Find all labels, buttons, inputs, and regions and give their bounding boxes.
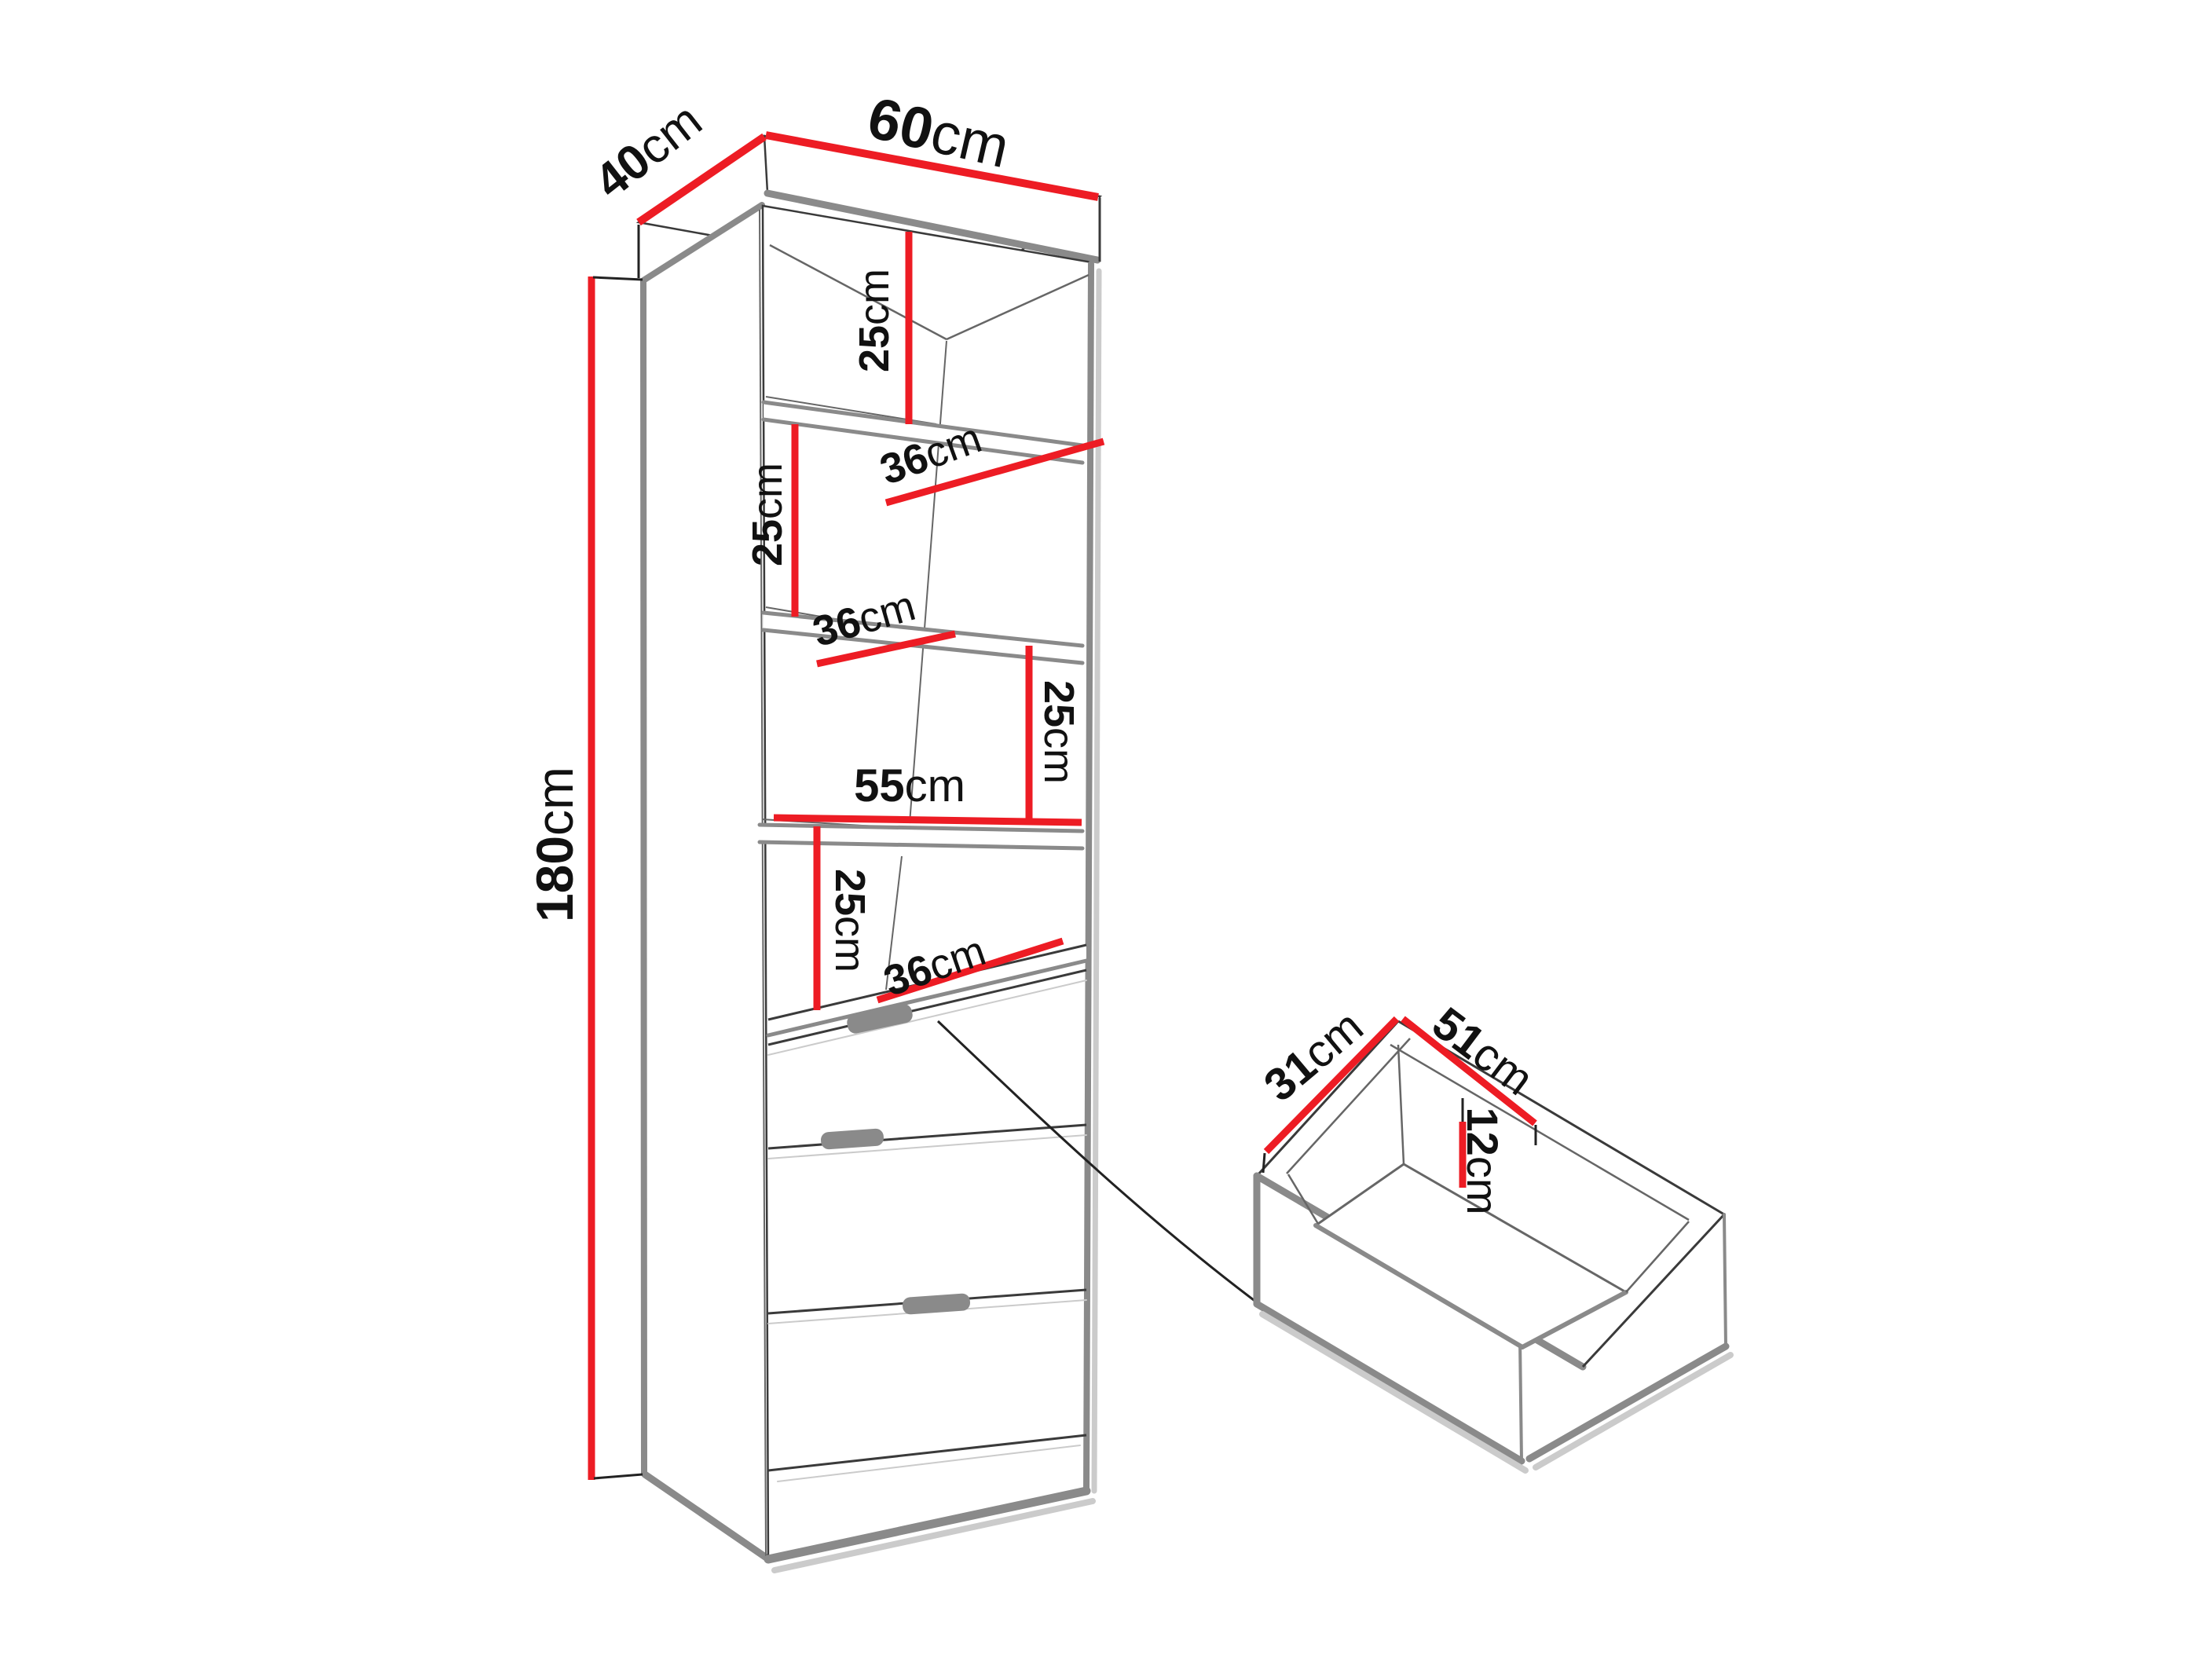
side-panel-left-edge <box>643 281 644 1473</box>
drawer-inner-height-label: 12cm <box>1459 1108 1508 1215</box>
gap-3-label: 25cm <box>1035 680 1082 784</box>
dim-line-interior-55 <box>774 818 1082 822</box>
height-label: 180cm <box>526 767 584 922</box>
interior-width-label: 55cm <box>854 760 965 811</box>
cabinet-side-panel <box>643 204 768 1559</box>
gap-1-label: 25cm <box>851 269 898 372</box>
page: { "diagram": { "background": "#ffffff", … <box>0 0 2212 1659</box>
front-panel-right-edge <box>1520 1339 1522 1461</box>
right-edge-shadow <box>1094 271 1099 1491</box>
dim-tick-height-bottom <box>594 1474 643 1478</box>
dim-tick-drawer-31 <box>1263 1153 1265 1173</box>
gap-4-label: 25cm <box>826 869 873 972</box>
side-panel-face <box>643 204 768 1559</box>
gap-2-label: 25cm <box>744 463 791 566</box>
furniture-dimension-diagram: 40cm 60cm 180cm 25cm 36cm 25cm 36cm 25cm… <box>0 0 2212 1659</box>
side-wall-right-edge <box>1724 1214 1726 1346</box>
dim-tick-height-top <box>593 277 643 280</box>
